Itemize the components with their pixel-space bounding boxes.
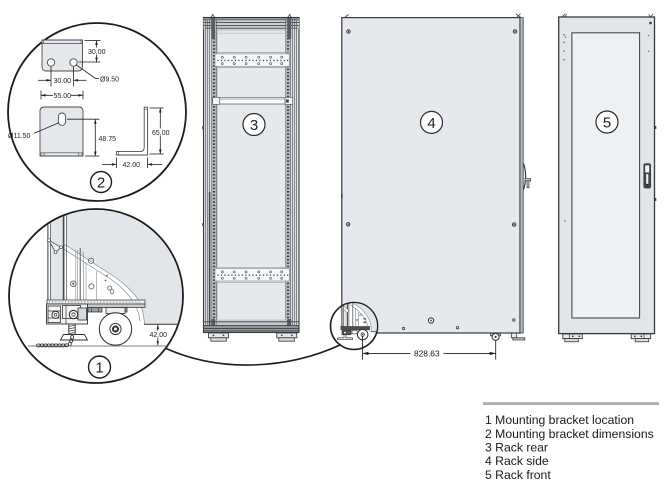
svg-text:3 Rack rear: 3 Rack rear — [485, 441, 548, 455]
svg-text:4 Rack side: 4 Rack side — [485, 454, 549, 468]
svg-text:30.00: 30.00 — [88, 49, 106, 56]
svg-text:55.00: 55.00 — [54, 93, 72, 100]
svg-text:4: 4 — [427, 115, 435, 132]
svg-text:828.63: 828.63 — [414, 348, 440, 358]
svg-text:65.00: 65.00 — [152, 130, 170, 137]
svg-text:30.00: 30.00 — [54, 78, 72, 85]
svg-text:2: 2 — [97, 174, 105, 191]
svg-text:Ø9.50: Ø9.50 — [100, 76, 119, 83]
svg-text:42.00: 42.00 — [123, 162, 141, 169]
svg-text:5: 5 — [603, 114, 611, 131]
svg-text:5 Rack front: 5 Rack front — [485, 468, 551, 482]
svg-text:1 Mounting bracket location: 1 Mounting bracket location — [485, 413, 634, 427]
svg-text:3: 3 — [250, 117, 258, 134]
svg-text:2 Mounting bracket dimensions: 2 Mounting bracket dimensions — [485, 427, 654, 441]
svg-text:Ø11.50: Ø11.50 — [8, 133, 31, 140]
svg-text:42.00: 42.00 — [150, 332, 168, 339]
svg-text:48.75: 48.75 — [99, 136, 117, 143]
svg-text:1: 1 — [95, 359, 103, 376]
